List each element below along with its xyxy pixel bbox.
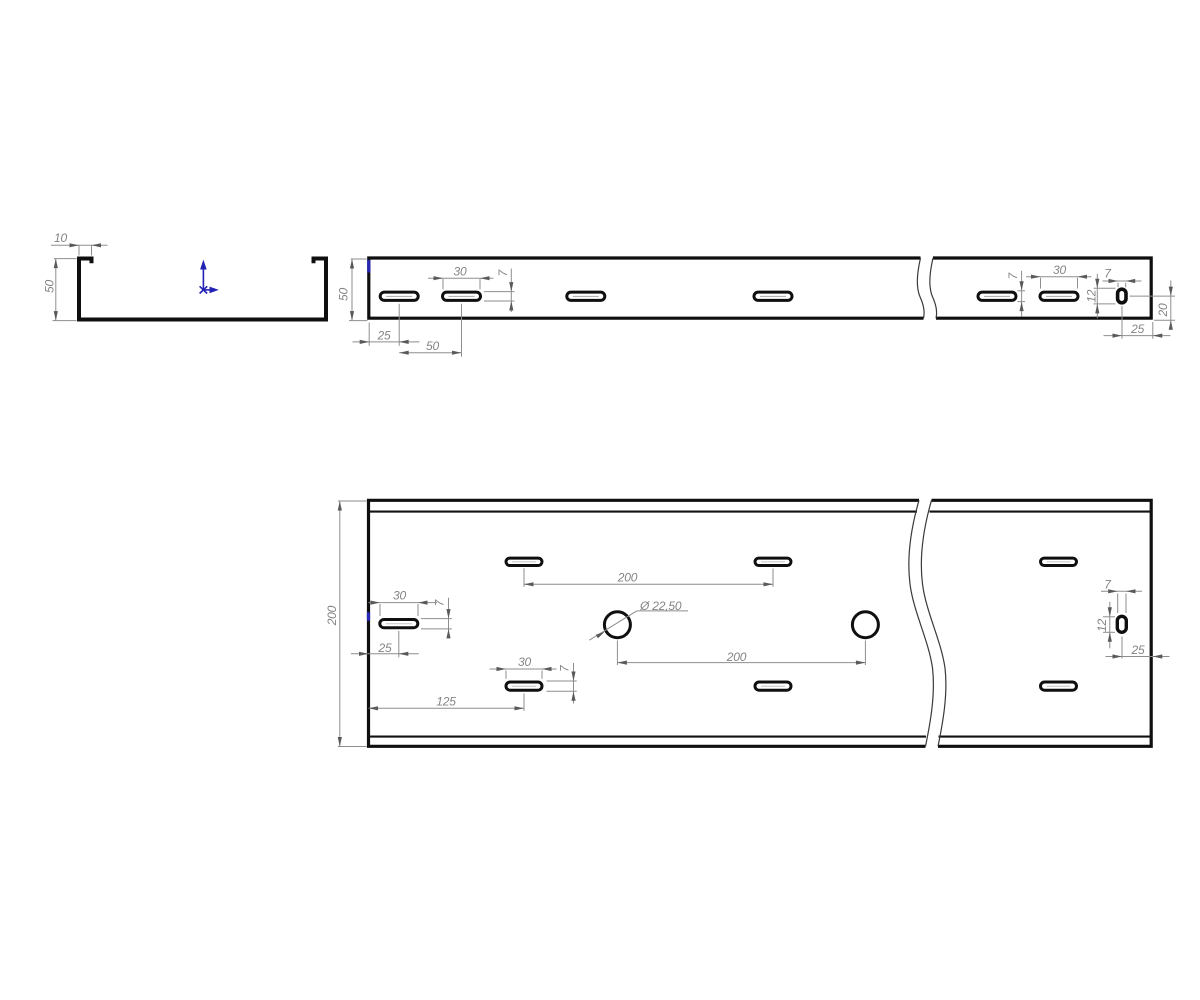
svg-text:200: 200 bbox=[617, 571, 638, 585]
svg-text:25: 25 bbox=[378, 641, 392, 655]
svg-text:30: 30 bbox=[1053, 263, 1066, 277]
svg-text:Ø 22,50: Ø 22,50 bbox=[639, 599, 682, 613]
svg-text:7: 7 bbox=[558, 664, 572, 672]
svg-text:7: 7 bbox=[1104, 267, 1112, 281]
svg-text:200: 200 bbox=[325, 605, 339, 626]
svg-text:125: 125 bbox=[436, 695, 456, 709]
svg-text:7: 7 bbox=[1104, 577, 1112, 591]
svg-text:50: 50 bbox=[43, 280, 57, 293]
svg-text:20: 20 bbox=[1156, 303, 1170, 317]
svg-text:30: 30 bbox=[454, 264, 467, 278]
svg-text:7: 7 bbox=[1006, 272, 1020, 280]
svg-text:50: 50 bbox=[337, 288, 351, 301]
svg-text:200: 200 bbox=[726, 650, 747, 664]
svg-text:25: 25 bbox=[1131, 643, 1145, 657]
svg-text:12: 12 bbox=[1095, 619, 1109, 632]
svg-text:7: 7 bbox=[433, 598, 447, 606]
svg-text:25: 25 bbox=[1130, 322, 1144, 336]
svg-text:25: 25 bbox=[377, 328, 391, 342]
svg-text:10: 10 bbox=[54, 231, 67, 245]
svg-text:7: 7 bbox=[496, 269, 510, 277]
svg-text:12: 12 bbox=[1085, 289, 1099, 302]
svg-text:30: 30 bbox=[518, 655, 531, 669]
svg-text:30: 30 bbox=[393, 588, 406, 602]
svg-text:50: 50 bbox=[426, 339, 439, 353]
